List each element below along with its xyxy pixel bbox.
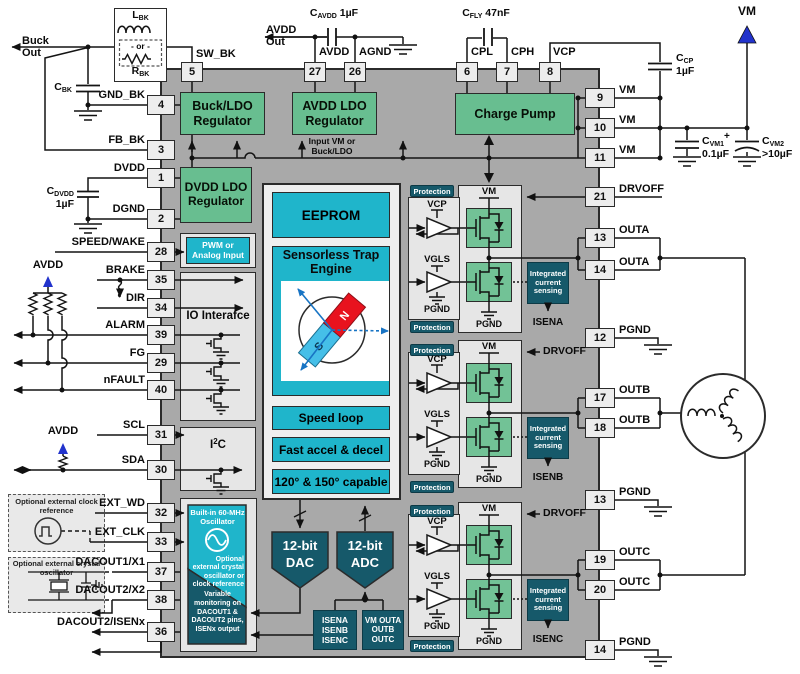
- pin-12: 12: [585, 328, 615, 348]
- vgls-label: VGLS: [421, 572, 453, 582]
- pin-14-pgnd: 14: [585, 640, 615, 660]
- cvm2-label: CVM2>10µF: [762, 136, 792, 160]
- phase-c-fet-low: [466, 579, 512, 619]
- phase-a-fet-low: [466, 262, 512, 302]
- avdd-label: AVDD: [35, 425, 91, 437]
- pin-20: 20: [585, 580, 615, 600]
- block-diagram: Buck/LDO Regulator AVDD LDO Regulator Ch…: [0, 0, 800, 674]
- pin-8: 8: [539, 62, 561, 82]
- pin-label: OUTA: [619, 224, 649, 236]
- vm-rail-label: VM: [475, 504, 503, 514]
- motor-symbol: [681, 374, 765, 458]
- vm-label: VM: [733, 5, 761, 18]
- pin-label: AVDD: [319, 46, 349, 58]
- pin-label: VM: [619, 84, 636, 96]
- pin-28: 28: [147, 242, 175, 262]
- pin-label: SDA: [40, 454, 145, 466]
- pin-label: PGND: [619, 636, 651, 648]
- buck-ldo-regulator: Buck/LDO Regulator: [180, 92, 265, 135]
- pin-6: 6: [456, 62, 478, 82]
- pin-29: 29: [147, 353, 175, 373]
- pin-30: 30: [147, 460, 175, 480]
- avdd-label: AVDD: [20, 259, 76, 271]
- pin-14-outa: 14: [585, 260, 615, 280]
- pin-11: 11: [585, 148, 615, 168]
- phase-b-fet-low: [466, 417, 512, 457]
- drvoff-label: DRVOFF: [543, 508, 586, 520]
- cdvdd-label: CDVDD1µF: [18, 186, 74, 210]
- osc-builtin-label: Built-in 60-MHz Oscillator: [189, 508, 246, 526]
- pin-label: OUTB: [619, 384, 650, 396]
- vm-rail-label: VM: [475, 342, 503, 352]
- osc-optional-label: Optional external crystal oscillator or …: [189, 556, 244, 590]
- trap-engine-image: [281, 281, 389, 381]
- charge-pump: Charge Pump: [455, 93, 575, 135]
- isena-label: ISENA: [528, 317, 568, 328]
- phase-c-fet-high: [466, 525, 512, 565]
- pin-label: DACOUT2/ISENx: [40, 616, 145, 628]
- avdd-out-label: AVDDOut: [266, 24, 296, 48]
- pin-label: SPEED/WAKE: [40, 236, 145, 248]
- phase-c-current-sense: Integrated current sensing: [527, 579, 569, 621]
- pin-label: CPL: [471, 46, 493, 58]
- pin-label: nFAULT: [40, 374, 145, 386]
- pgnd-label: PGND: [471, 637, 507, 647]
- pin-label: DACOUT2/X2: [40, 584, 145, 596]
- speed-loop-block: Speed loop: [272, 406, 390, 430]
- phase-a-current-sense: Integrated current sensing: [527, 262, 569, 304]
- cfly-label: CFLY 47nF: [452, 8, 520, 21]
- pin-label: OUTB: [619, 414, 650, 426]
- io-interface-panel: [180, 272, 256, 421]
- pin-9: 9: [585, 88, 615, 108]
- cavdd-label: CAVDD 1µF: [300, 8, 368, 21]
- cbk-label: CBK: [30, 82, 72, 95]
- vgls-label: VGLS: [421, 410, 453, 420]
- pin-31: 31: [147, 425, 175, 445]
- pin-4: 4: [147, 95, 175, 115]
- pin-1: 1: [147, 168, 175, 188]
- pin-35: 35: [147, 270, 175, 290]
- pin-label: ALARM: [40, 319, 145, 331]
- dac-label: 12-bit DAC: [271, 538, 329, 572]
- clock-ref-label: Optional external clock reference: [11, 497, 102, 516]
- pin-label: OUTA: [619, 256, 649, 268]
- pin-39: 39: [147, 325, 175, 345]
- buck-out-label: BuckOut: [22, 35, 49, 59]
- pin-label: OUTC: [619, 576, 650, 588]
- osc-monitoring-label: Variable monitoring on DACOUT1 & DACOUT2…: [189, 591, 246, 635]
- pgnd-label: PGND: [471, 475, 507, 485]
- vm-rail-label: VM: [475, 187, 503, 197]
- ccp-label: CCP1µF: [676, 53, 694, 77]
- pin-5: 5: [181, 62, 203, 82]
- pgnd-label: PGND: [471, 320, 507, 330]
- pin-36: 36: [147, 622, 175, 642]
- pin-21: 21: [585, 187, 615, 207]
- pin-2: 2: [147, 209, 175, 229]
- pin-27: 27: [304, 62, 326, 82]
- i2c-label: I2C: [180, 438, 256, 452]
- rbk-label: RBK: [114, 66, 167, 79]
- pin-label: DVDD: [40, 162, 145, 174]
- i2c-panel: [180, 427, 256, 491]
- protection-badge: Protection: [410, 321, 454, 333]
- pin-33: 33: [147, 532, 175, 552]
- pin-32: 32: [147, 503, 175, 523]
- phase-b-fet-high: [466, 363, 512, 403]
- pin-label: FG: [40, 347, 145, 359]
- io-interface-label: IO Interafce: [180, 310, 256, 323]
- pin-7: 7: [496, 62, 518, 82]
- or-label: - or -: [114, 42, 167, 51]
- pin-label: SW_BK: [196, 48, 236, 60]
- protection-badge: Protection: [410, 481, 454, 493]
- protection-badge: Protection: [410, 185, 454, 197]
- pin-17: 17: [585, 388, 615, 408]
- pwm-analog-input: PWM or Analog Input: [186, 237, 250, 264]
- dvdd-ldo-regulator: DVDD LDO Regulator: [180, 167, 252, 223]
- vm-supply-arrow: [738, 26, 756, 43]
- plus-sign: +: [724, 131, 730, 142]
- pin-13-pgnd: 13: [585, 490, 615, 510]
- pin-label: EXT_CLK: [40, 526, 145, 538]
- pin-34: 34: [147, 298, 175, 318]
- pin-label: VCP: [553, 46, 576, 58]
- pin-10: 10: [585, 118, 615, 138]
- vcp-label: VCP: [423, 517, 451, 527]
- pin-label: FB_BK: [40, 134, 145, 146]
- input-vm-label: Input VM or Buck/LDO: [303, 137, 361, 157]
- isenc-label: ISENC: [528, 634, 568, 645]
- avdd-supply-arrow: [58, 443, 68, 454]
- trap-engine-label: Sensorless Trap Engine: [274, 249, 388, 277]
- vcp-label: VCP: [423, 200, 451, 210]
- isen-input-box: ISENA ISENB ISENC: [313, 610, 357, 650]
- pgnd-label: PGND: [419, 460, 455, 470]
- adc-label: 12-bit ADC: [336, 538, 394, 572]
- pin-40: 40: [147, 380, 175, 400]
- lbk-label: LBK: [114, 10, 167, 23]
- protection-badge: Protection: [410, 640, 454, 652]
- phase-b-current-sense: Integrated current sensing: [527, 417, 569, 459]
- pin-3: 3: [147, 140, 175, 160]
- avdd-ldo-regulator: AVDD LDO Regulator: [292, 92, 377, 135]
- pin-18: 18: [585, 418, 615, 438]
- pin-label: DRVOFF: [619, 183, 664, 195]
- crystal-label: Optional external crystal oscillator: [11, 559, 102, 578]
- capable-block: 120° & 150° capable: [272, 469, 390, 494]
- pin-label: VM: [619, 144, 636, 156]
- drvoff-label: DRVOFF: [543, 346, 586, 358]
- pin-label: PGND: [619, 486, 651, 498]
- avdd-supply-arrow: [43, 276, 53, 287]
- vcp-label: VCP: [423, 355, 451, 365]
- vm-out-input-box: VM OUTA OUTB OUTC: [362, 610, 404, 650]
- vgls-label: VGLS: [421, 255, 453, 265]
- pin-26: 26: [344, 62, 366, 82]
- phase-a-fet-high: [466, 208, 512, 248]
- pgnd-label: PGND: [419, 305, 455, 315]
- pin-label: VM: [619, 114, 636, 126]
- pin-38: 38: [147, 590, 175, 610]
- pin-37: 37: [147, 562, 175, 582]
- pin-label: CPH: [511, 46, 534, 58]
- isenb-label: ISENB: [528, 472, 568, 483]
- pin-label: OUTC: [619, 546, 650, 558]
- pin-19: 19: [585, 550, 615, 570]
- pgnd-label: PGND: [419, 622, 455, 632]
- pin-label: AGND: [359, 46, 391, 58]
- eeprom-block: EEPROM: [272, 192, 390, 238]
- pin-label: PGND: [619, 324, 651, 336]
- pin-13-outa: 13: [585, 228, 615, 248]
- pin-label: DIR: [40, 292, 145, 304]
- fast-accel-block: Fast accel & decel: [272, 437, 390, 462]
